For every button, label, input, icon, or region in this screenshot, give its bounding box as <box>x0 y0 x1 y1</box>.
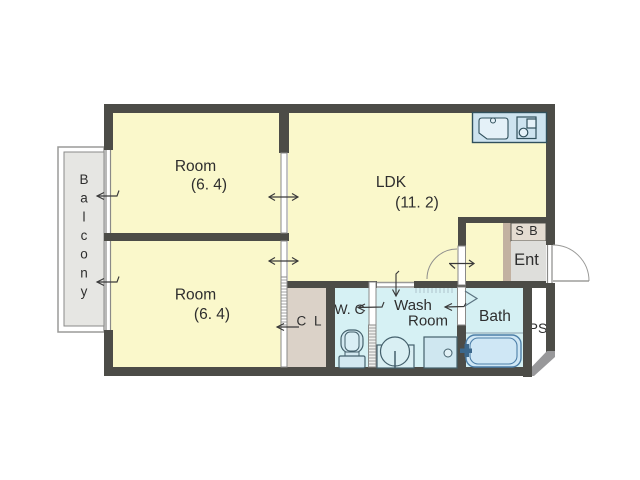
svg-text:Ent: Ent <box>514 251 539 269</box>
svg-text:LDK: LDK <box>376 174 407 191</box>
svg-text:l: l <box>83 209 86 224</box>
svg-text:(11. 2): (11. 2) <box>395 195 439 212</box>
svg-text:Room: Room <box>175 287 216 304</box>
svg-text:(6. 4): (6. 4) <box>194 306 230 323</box>
svg-text:Room: Room <box>175 158 216 175</box>
svg-text:Bath: Bath <box>479 308 511 325</box>
svg-text:Wash: Wash <box>394 297 432 314</box>
svg-text:n: n <box>80 265 88 280</box>
svg-text:a: a <box>80 191 88 206</box>
svg-text:B: B <box>79 172 88 187</box>
svg-text:c: c <box>81 228 88 243</box>
svg-text:(6. 4): (6. 4) <box>191 177 227 194</box>
svg-text:S B: S B <box>515 224 538 238</box>
svg-text:y: y <box>81 284 88 299</box>
svg-text:o: o <box>80 247 88 262</box>
svg-text:C L: C L <box>296 314 323 329</box>
svg-text:Room: Room <box>408 313 448 330</box>
